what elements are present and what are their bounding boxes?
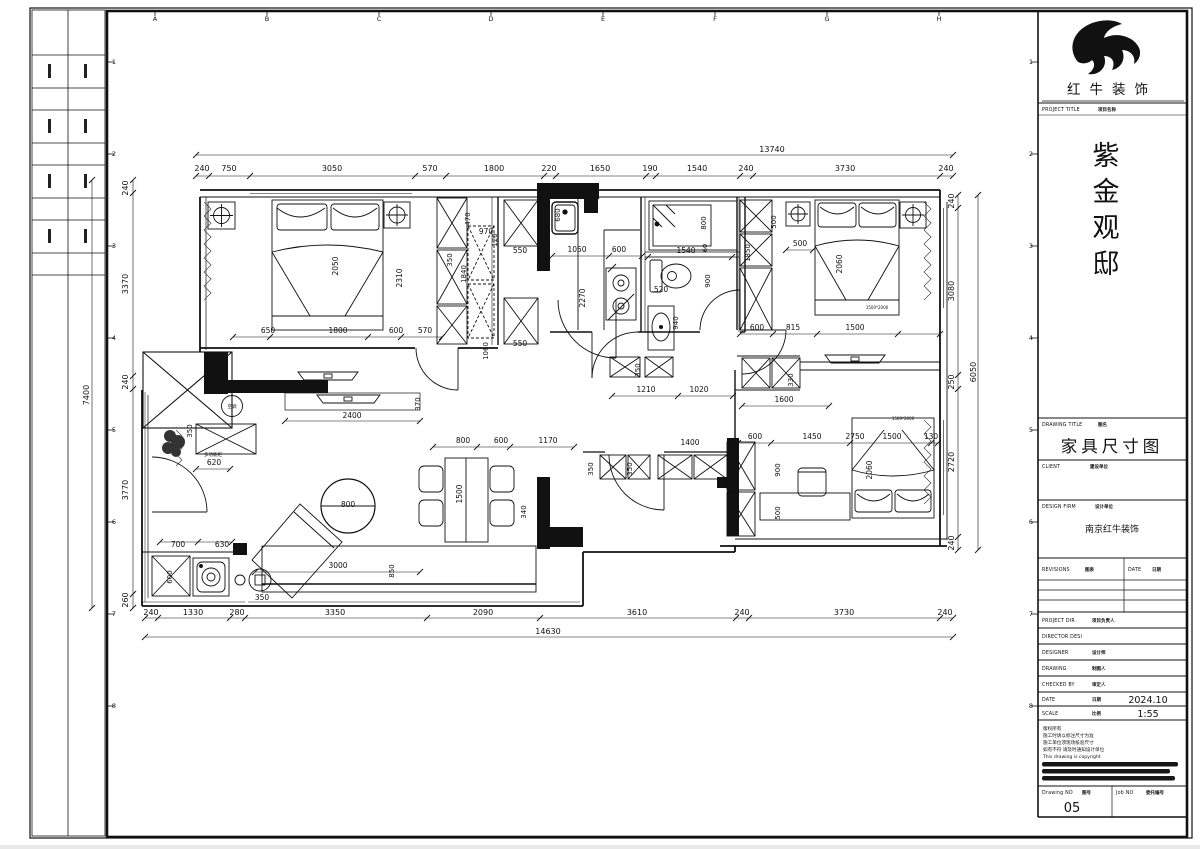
svg-text:340: 340 xyxy=(520,505,528,518)
svg-text:观: 观 xyxy=(1093,213,1120,244)
svg-text:2310: 2310 xyxy=(395,268,404,287)
tv-icon xyxy=(298,372,358,380)
door-balcony xyxy=(152,457,207,512)
floor-plan: 2407503050570180022016501901540240373024… xyxy=(82,145,981,640)
bathroom xyxy=(648,201,737,350)
svg-text:2750: 2750 xyxy=(845,432,864,441)
svg-text:60: 60 xyxy=(701,244,709,252)
wall-hatch xyxy=(176,202,931,504)
door-bath xyxy=(700,290,740,330)
svg-text:2720: 2720 xyxy=(947,452,956,472)
client-label-cn: 建设单位 xyxy=(1089,463,1108,470)
svg-text:1170: 1170 xyxy=(538,436,557,445)
svg-text:350: 350 xyxy=(255,593,270,602)
svg-text:600: 600 xyxy=(389,326,404,335)
svg-text:1210: 1210 xyxy=(636,385,655,394)
svg-text:240: 240 xyxy=(194,164,209,173)
svg-text:800: 800 xyxy=(700,216,708,229)
svg-text:600: 600 xyxy=(748,432,763,441)
revisions-label-cn: 图表 xyxy=(1085,566,1094,573)
svg-text:350: 350 xyxy=(446,253,454,266)
beds xyxy=(272,200,934,518)
svg-text:330: 330 xyxy=(787,373,795,386)
basin-icon xyxy=(648,306,674,350)
chair xyxy=(419,466,443,492)
svg-text:2400: 2400 xyxy=(342,411,361,420)
scale-label: SCALE xyxy=(1042,711,1058,717)
drawing-no: 05 xyxy=(1064,801,1081,816)
chair xyxy=(490,466,514,492)
brand-name: 红牛装饰 xyxy=(1067,82,1157,98)
crosshair-icon xyxy=(384,202,410,228)
svg-text:550: 550 xyxy=(513,339,528,348)
svg-text:1800: 1800 xyxy=(328,326,347,335)
svg-text:120: 120 xyxy=(491,233,499,246)
storage-cabinets xyxy=(152,198,800,596)
designer-label: DESIGNER xyxy=(1042,650,1069,656)
svg-text:7400: 7400 xyxy=(82,385,91,405)
svg-text:600: 600 xyxy=(166,570,174,583)
cad-canvas: ABCDEFGH1122334455667788 xyxy=(0,0,1200,845)
svg-text:800: 800 xyxy=(341,500,356,509)
svg-text:This drawing is copyright: This drawing is copyright xyxy=(1042,754,1101,760)
drain-icon xyxy=(235,575,245,585)
project-title-label-cn: 项目名称 xyxy=(1098,106,1116,113)
svg-text:A: A xyxy=(153,15,158,23)
washing-machine-icon xyxy=(193,558,229,596)
svg-text:815: 815 xyxy=(786,323,801,332)
svg-text:3770: 3770 xyxy=(121,480,130,500)
rev-date-label-cn: 日期 xyxy=(1152,566,1161,573)
svg-text:邸: 邸 xyxy=(1093,249,1120,280)
svg-text:1600: 1600 xyxy=(774,395,793,404)
hall-cabinet-upper xyxy=(504,200,538,344)
svg-text:350: 350 xyxy=(626,462,634,475)
svg-text:G: G xyxy=(824,15,829,23)
svg-text:施工单位须现场核验尺寸: 施工单位须现场核验尺寸 xyxy=(1043,739,1094,746)
svg-text:1500: 1500 xyxy=(455,484,464,503)
svg-text:1450: 1450 xyxy=(802,432,821,441)
shower-icon xyxy=(649,201,737,250)
svg-text:350: 350 xyxy=(634,363,642,376)
svg-text:版权所有: 版权所有 xyxy=(1043,725,1062,732)
svg-text:240: 240 xyxy=(937,608,952,617)
drawing-title-label-cn: 图名 xyxy=(1098,421,1107,428)
svg-text:3050: 3050 xyxy=(322,164,342,173)
director-label: DIRECTOR DESI xyxy=(1042,634,1082,640)
job-no-label-cn: 委托编号 xyxy=(1146,789,1164,796)
svg-text:B: B xyxy=(265,15,269,23)
stove-icon xyxy=(606,264,636,320)
tv-cabinet xyxy=(285,393,420,410)
svg-text:500: 500 xyxy=(793,239,808,248)
bed-tr xyxy=(815,200,899,315)
bed-master xyxy=(272,200,383,330)
scale-value: 1:55 xyxy=(1137,709,1158,720)
interior-walls xyxy=(200,197,940,452)
svg-text:1540: 1540 xyxy=(676,246,695,255)
svg-text:1800: 1800 xyxy=(484,164,504,173)
checked-label: CHECKED BY xyxy=(1042,682,1075,688)
svg-text:空调: 空调 xyxy=(228,403,237,410)
svg-text:F: F xyxy=(713,15,717,23)
svg-text:240: 240 xyxy=(947,535,956,550)
scale-label-cn: 比例 xyxy=(1092,710,1101,717)
laundry xyxy=(193,558,245,596)
svg-text:H: H xyxy=(937,15,942,23)
drawing-no-label: Drawing NO xyxy=(1042,790,1073,796)
svg-text:570: 570 xyxy=(422,164,437,173)
crosshair-icon xyxy=(900,202,926,228)
svg-text:3730: 3730 xyxy=(835,164,855,173)
door-entry xyxy=(558,300,616,358)
svg-text:240: 240 xyxy=(938,164,953,173)
svg-text:3610: 3610 xyxy=(627,608,647,617)
drawing-by-label: DRAWING xyxy=(1042,666,1067,672)
svg-text:3080: 3080 xyxy=(947,281,956,301)
svg-text:3350: 3350 xyxy=(325,608,345,617)
svg-text:1500*2000: 1500*2000 xyxy=(892,416,915,421)
date-label: DATE xyxy=(1042,697,1055,703)
svg-text:130: 130 xyxy=(924,432,939,441)
svg-text:2270: 2270 xyxy=(578,288,587,307)
rev-date-label: DATE xyxy=(1128,567,1141,573)
svg-text:紫: 紫 xyxy=(1093,141,1120,172)
bearing-walls xyxy=(204,183,739,555)
svg-text:1500: 1500 xyxy=(845,323,864,332)
svg-text:14630: 14630 xyxy=(535,627,560,636)
svg-text:500: 500 xyxy=(770,215,778,228)
kitchen xyxy=(552,199,640,330)
svg-text:如有不符 请及时通知设计单位: 如有不符 请及时通知设计单位 xyxy=(1043,746,1105,753)
drawing-no-label-cn: 图号 xyxy=(1082,789,1091,796)
strip-illegible-text xyxy=(48,64,87,243)
plant-icon xyxy=(162,430,185,457)
dining-area xyxy=(419,458,514,542)
drawing-title-label: DRAWING TITLE xyxy=(1042,422,1082,428)
svg-text:190: 190 xyxy=(642,164,657,173)
date-label-cn: 日期 xyxy=(1092,696,1101,703)
revisions-label: REVISIONS xyxy=(1042,567,1070,573)
svg-text:550: 550 xyxy=(513,246,528,255)
checked-label-cn: 审定人 xyxy=(1092,681,1106,688)
svg-text:1330: 1330 xyxy=(183,608,203,617)
svg-text:680: 680 xyxy=(554,208,562,221)
svg-text:6050: 6050 xyxy=(969,362,978,382)
svg-text:900: 900 xyxy=(774,463,782,476)
svg-text:850: 850 xyxy=(388,564,396,577)
crosshair-icon xyxy=(208,202,235,229)
crosshair-icon xyxy=(786,202,810,226)
svg-text:1060: 1060 xyxy=(482,342,490,360)
svg-text:3000: 3000 xyxy=(328,561,347,570)
dimension-lines xyxy=(89,152,981,640)
svg-text:620: 620 xyxy=(207,458,222,467)
svg-text:3730: 3730 xyxy=(834,608,854,617)
svg-text:350: 350 xyxy=(587,462,595,475)
drawing-title: 家具尺寸图 xyxy=(1061,437,1164,456)
svg-text:多功能柜: 多功能柜 xyxy=(204,451,222,458)
svg-text:750: 750 xyxy=(221,164,236,173)
design-firm-label: DESIGN FIRM xyxy=(1042,504,1076,510)
designer-label-cn: 设计师 xyxy=(1092,649,1106,656)
dining-table xyxy=(445,458,488,542)
register-strip xyxy=(32,10,105,836)
brand-area: 红牛装饰 xyxy=(1067,20,1157,98)
red-bull-logo-icon xyxy=(1072,20,1140,74)
project-title-label: PROJECT TITLE xyxy=(1042,107,1080,113)
svg-text:240: 240 xyxy=(738,164,753,173)
svg-text:C: C xyxy=(377,15,382,23)
svg-text:600: 600 xyxy=(494,436,509,445)
living-room xyxy=(162,372,536,598)
project-name: 紫金观邸 xyxy=(1093,141,1120,280)
svg-text:1540: 1540 xyxy=(687,164,707,173)
svg-text:金: 金 xyxy=(1093,177,1120,208)
svg-text:施工时请以标注尺寸为准: 施工时请以标注尺寸为准 xyxy=(1043,732,1094,739)
svg-text:250: 250 xyxy=(947,374,956,389)
svg-text:240: 240 xyxy=(121,180,130,195)
svg-text:700: 700 xyxy=(171,540,186,549)
svg-text:240: 240 xyxy=(143,608,158,617)
tv-icon xyxy=(317,395,380,403)
svg-text:630: 630 xyxy=(215,540,230,549)
sheet-frame xyxy=(30,8,1192,838)
svg-text:240: 240 xyxy=(121,374,130,389)
date-value: 2024.10 xyxy=(1128,695,1167,706)
client-label: CLIENT xyxy=(1042,464,1060,470)
svg-text:940: 940 xyxy=(672,316,680,329)
drawing-by-label-cn: 制图人 xyxy=(1092,665,1106,672)
svg-text:240: 240 xyxy=(734,608,749,617)
project-dir-label: PROJECT DIR xyxy=(1042,618,1075,624)
svg-text:1850: 1850 xyxy=(744,244,752,262)
hall-storage-row xyxy=(600,455,727,479)
svg-text:500: 500 xyxy=(774,506,782,519)
svg-text:1500: 1500 xyxy=(882,432,901,441)
svg-text:520: 520 xyxy=(654,285,669,294)
chair xyxy=(490,500,514,526)
title-block: 红牛装饰 PROJECT TITLE 项目名称 紫金观邸 DRAWING TIT… xyxy=(1038,11,1187,817)
svg-text:370: 370 xyxy=(414,397,422,410)
svg-text:2060: 2060 xyxy=(835,254,844,273)
svg-text:1020: 1020 xyxy=(689,385,708,394)
svg-text:260: 260 xyxy=(121,592,130,607)
svg-text:1050: 1050 xyxy=(567,245,586,254)
svg-text:1650: 1650 xyxy=(590,164,610,173)
job-no-label: Job NO xyxy=(1115,790,1134,796)
notes-redacted xyxy=(1042,762,1178,781)
door-master xyxy=(416,348,458,390)
svg-text:13740: 13740 xyxy=(759,145,784,154)
svg-text:2050: 2050 xyxy=(331,256,340,275)
svg-text:1500*2000: 1500*2000 xyxy=(866,305,889,310)
project-dir-label-cn: 项目负责人 xyxy=(1092,617,1115,624)
svg-text:2090: 2090 xyxy=(473,608,493,617)
svg-text:1840: 1840 xyxy=(460,265,468,283)
svg-text:2060: 2060 xyxy=(865,460,874,479)
door-bedroom-tr xyxy=(742,330,786,374)
svg-text:3370: 3370 xyxy=(121,274,130,294)
svg-text:D: D xyxy=(488,15,493,23)
drawing-sheet: ABCDEFGH1122334455667788 xyxy=(0,0,1200,845)
chair xyxy=(419,500,443,526)
svg-text:600: 600 xyxy=(750,323,765,332)
svg-text:570: 570 xyxy=(418,326,433,335)
svg-text:650: 650 xyxy=(261,326,276,335)
svg-text:800: 800 xyxy=(456,436,471,445)
svg-text:240: 240 xyxy=(947,193,956,208)
design-firm: 南京红牛装饰 xyxy=(1085,523,1139,535)
svg-text:280: 280 xyxy=(229,608,244,617)
design-firm-label-cn: 设计单位 xyxy=(1095,503,1113,510)
svg-text:600: 600 xyxy=(612,245,627,254)
svg-text:1400: 1400 xyxy=(680,438,699,447)
svg-text:470: 470 xyxy=(464,212,472,225)
svg-text:350: 350 xyxy=(186,424,194,437)
svg-text:E: E xyxy=(601,15,605,23)
notes: 版权所有施工时请以标注尺寸为准施工单位须现场核验尺寸如有不符 请及时通知设计单位… xyxy=(1042,725,1105,760)
sofa xyxy=(252,504,536,598)
svg-text:220: 220 xyxy=(541,164,556,173)
svg-text:900: 900 xyxy=(704,274,712,287)
